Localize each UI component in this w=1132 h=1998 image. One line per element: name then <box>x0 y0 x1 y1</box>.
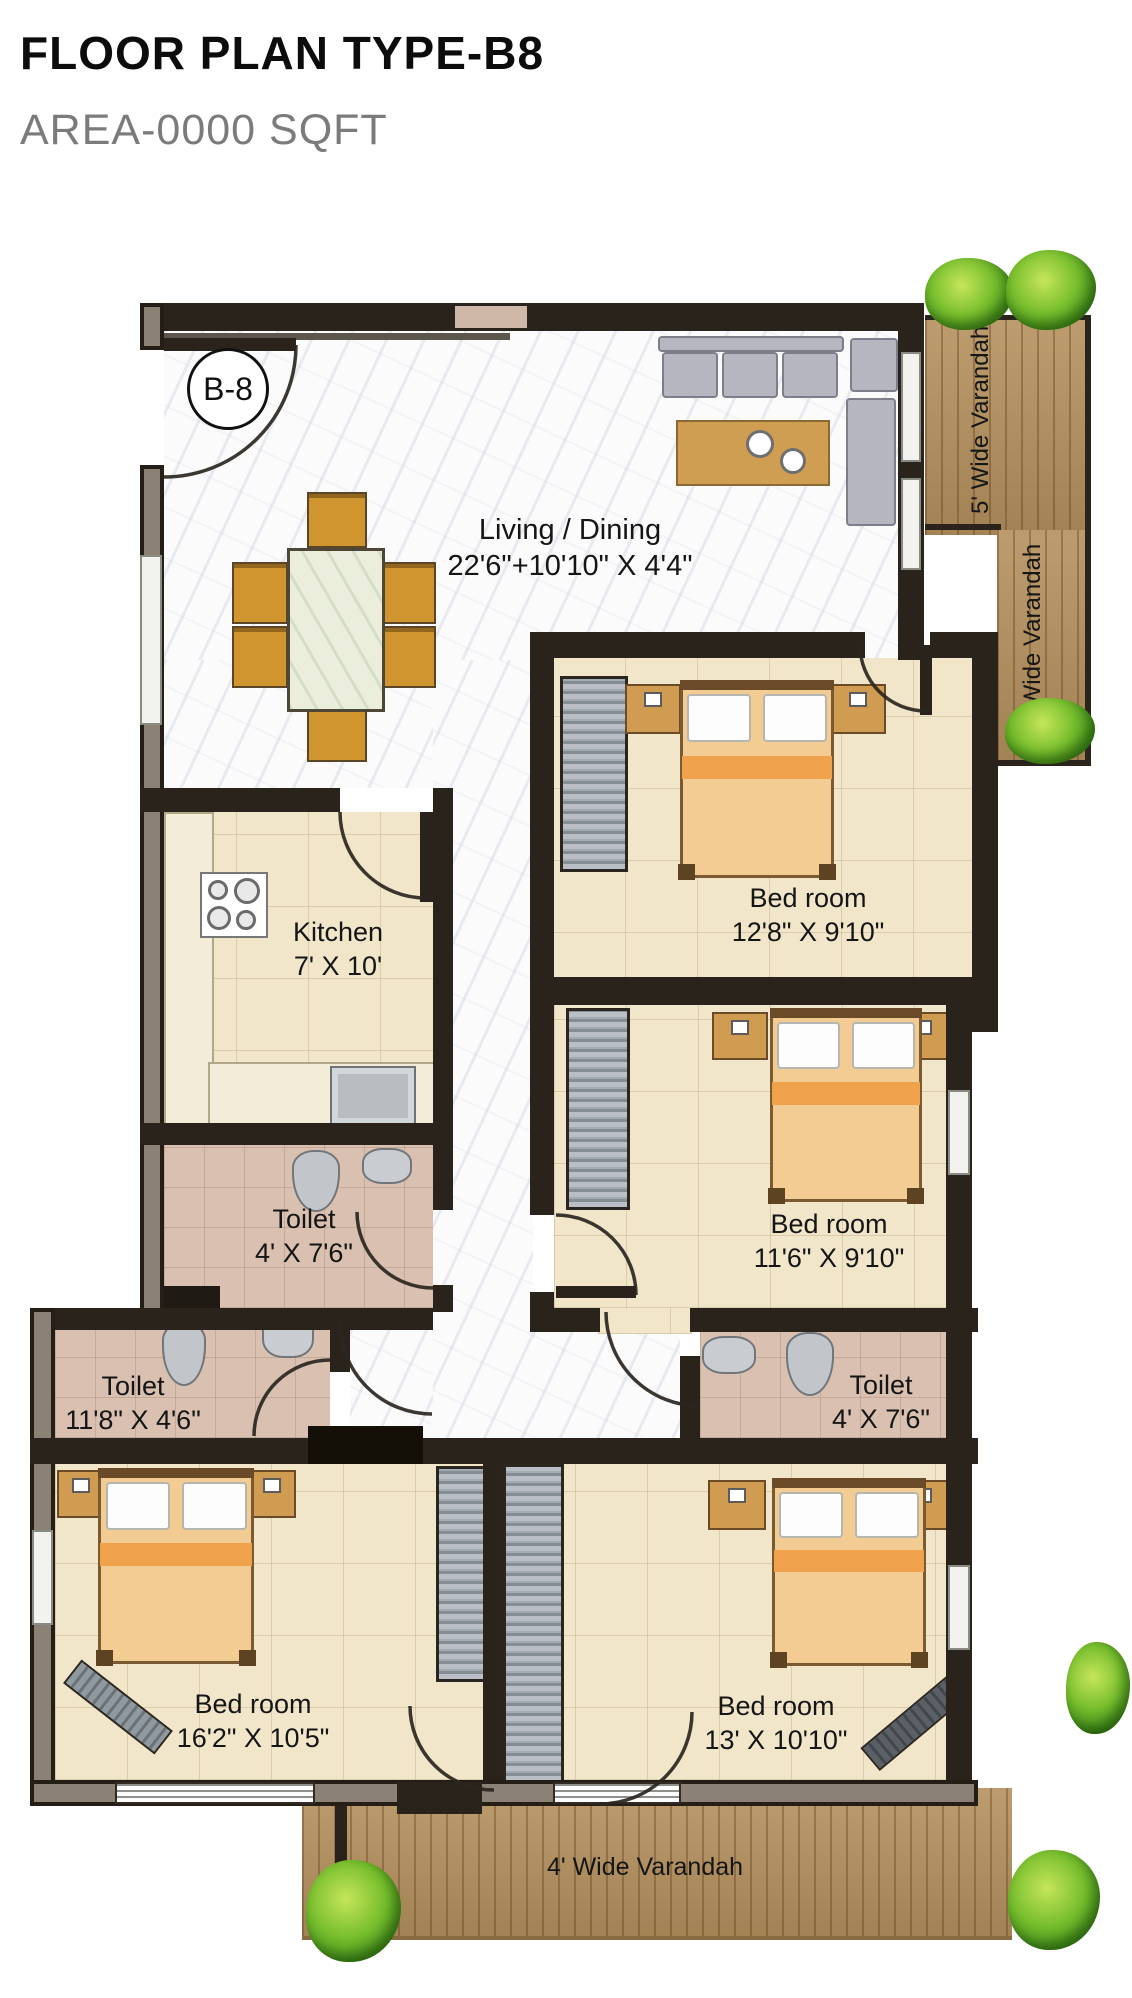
room-dims: 4' X 7'6" <box>832 1403 930 1437</box>
bedroom3-label: Bed room 16'2" X 10'5" <box>177 1688 330 1756</box>
verandah-bottom-label: 4' Wide Varandah <box>547 1852 743 1883</box>
unit-badge-text: B-8 <box>203 371 253 408</box>
bedroom4-label: Bed room 13' X 10'10" <box>704 1690 847 1758</box>
room-name: Toilet <box>65 1370 201 1404</box>
verandah-right-upper-label: 5' Wide Varandah <box>966 322 996 517</box>
toilet-left-label: Toilet 11'8" X 4'6" <box>65 1370 201 1438</box>
toilet-left-door-arc <box>254 1360 330 1436</box>
room-name: Bed room <box>754 1208 905 1242</box>
toilet-kitchen-door-arc <box>357 1212 433 1288</box>
room-dims: 4' X 7'6" <box>255 1237 353 1271</box>
room-dims: 12'8" X 9'10" <box>732 916 885 950</box>
room-name: Bed room <box>704 1690 847 1724</box>
toilet-right-door-arc <box>606 1312 700 1406</box>
room-dims: 22'6"+10'10" X 4'4" <box>447 548 692 584</box>
room-name: Living / Dining <box>447 512 692 548</box>
room-name: Kitchen <box>293 916 383 950</box>
bedroom2-door-arc <box>556 1215 636 1295</box>
floor-plan-page: FLOOR PLAN TYPE-B8 AREA-0000 SQFT <box>0 0 1132 1998</box>
room-name: Bed room <box>732 882 885 916</box>
bedroom3-verandah-door-arc <box>410 1706 494 1790</box>
kitchen-door-arc <box>340 812 426 898</box>
room-name: Toilet <box>255 1203 353 1237</box>
room-name: Toilet <box>832 1369 930 1403</box>
bedroom2-label: Bed room 11'6" X 9'10" <box>754 1208 905 1276</box>
kitchen-label: Kitchen 7' X 10' <box>293 916 383 984</box>
bedroom1-label: Bed room 12'8" X 9'10" <box>732 882 885 950</box>
living-dining-label: Living / Dining 22'6"+10'10" X 4'4" <box>447 512 692 585</box>
room-dims: 11'8" X 4'6" <box>65 1404 201 1438</box>
bedroom1-door-arc <box>860 645 926 711</box>
room-dims: 11'6" X 9'10" <box>754 1242 905 1276</box>
room-name: Bed room <box>177 1688 330 1722</box>
bedroom4-verandah-door-arc <box>600 1712 692 1804</box>
room-dims: 7' X 10' <box>293 950 383 984</box>
room-dims: 13' X 10'10" <box>704 1724 847 1758</box>
toilet-kitchen-label: Toilet 4' X 7'6" <box>255 1203 353 1271</box>
lobby-door-arc <box>340 1322 432 1414</box>
unit-badge: B-8 <box>187 348 269 430</box>
room-dims: 16'2" X 10'5" <box>177 1722 330 1756</box>
toilet-right-label: Toilet 4' X 7'6" <box>832 1369 930 1437</box>
